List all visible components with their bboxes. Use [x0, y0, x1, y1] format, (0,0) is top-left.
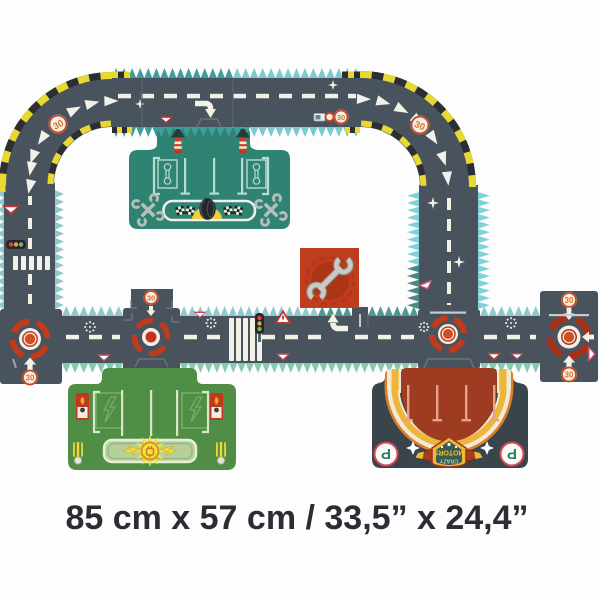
svg-text:P: P [507, 445, 517, 462]
svg-text:CRAZY: CRAZY [439, 458, 458, 464]
svg-text:MOTORS: MOTORS [433, 449, 464, 456]
svg-text:85 cm x 57 cm / 33,5” x 24,4”: 85 cm x 57 cm / 33,5” x 24,4” [65, 499, 528, 537]
svg-text:30: 30 [147, 294, 155, 303]
svg-text:P: P [381, 445, 391, 462]
svg-text:30: 30 [26, 374, 35, 383]
svg-text:30: 30 [565, 371, 574, 380]
svg-text:30: 30 [337, 113, 345, 122]
svg-text:30: 30 [565, 296, 574, 305]
